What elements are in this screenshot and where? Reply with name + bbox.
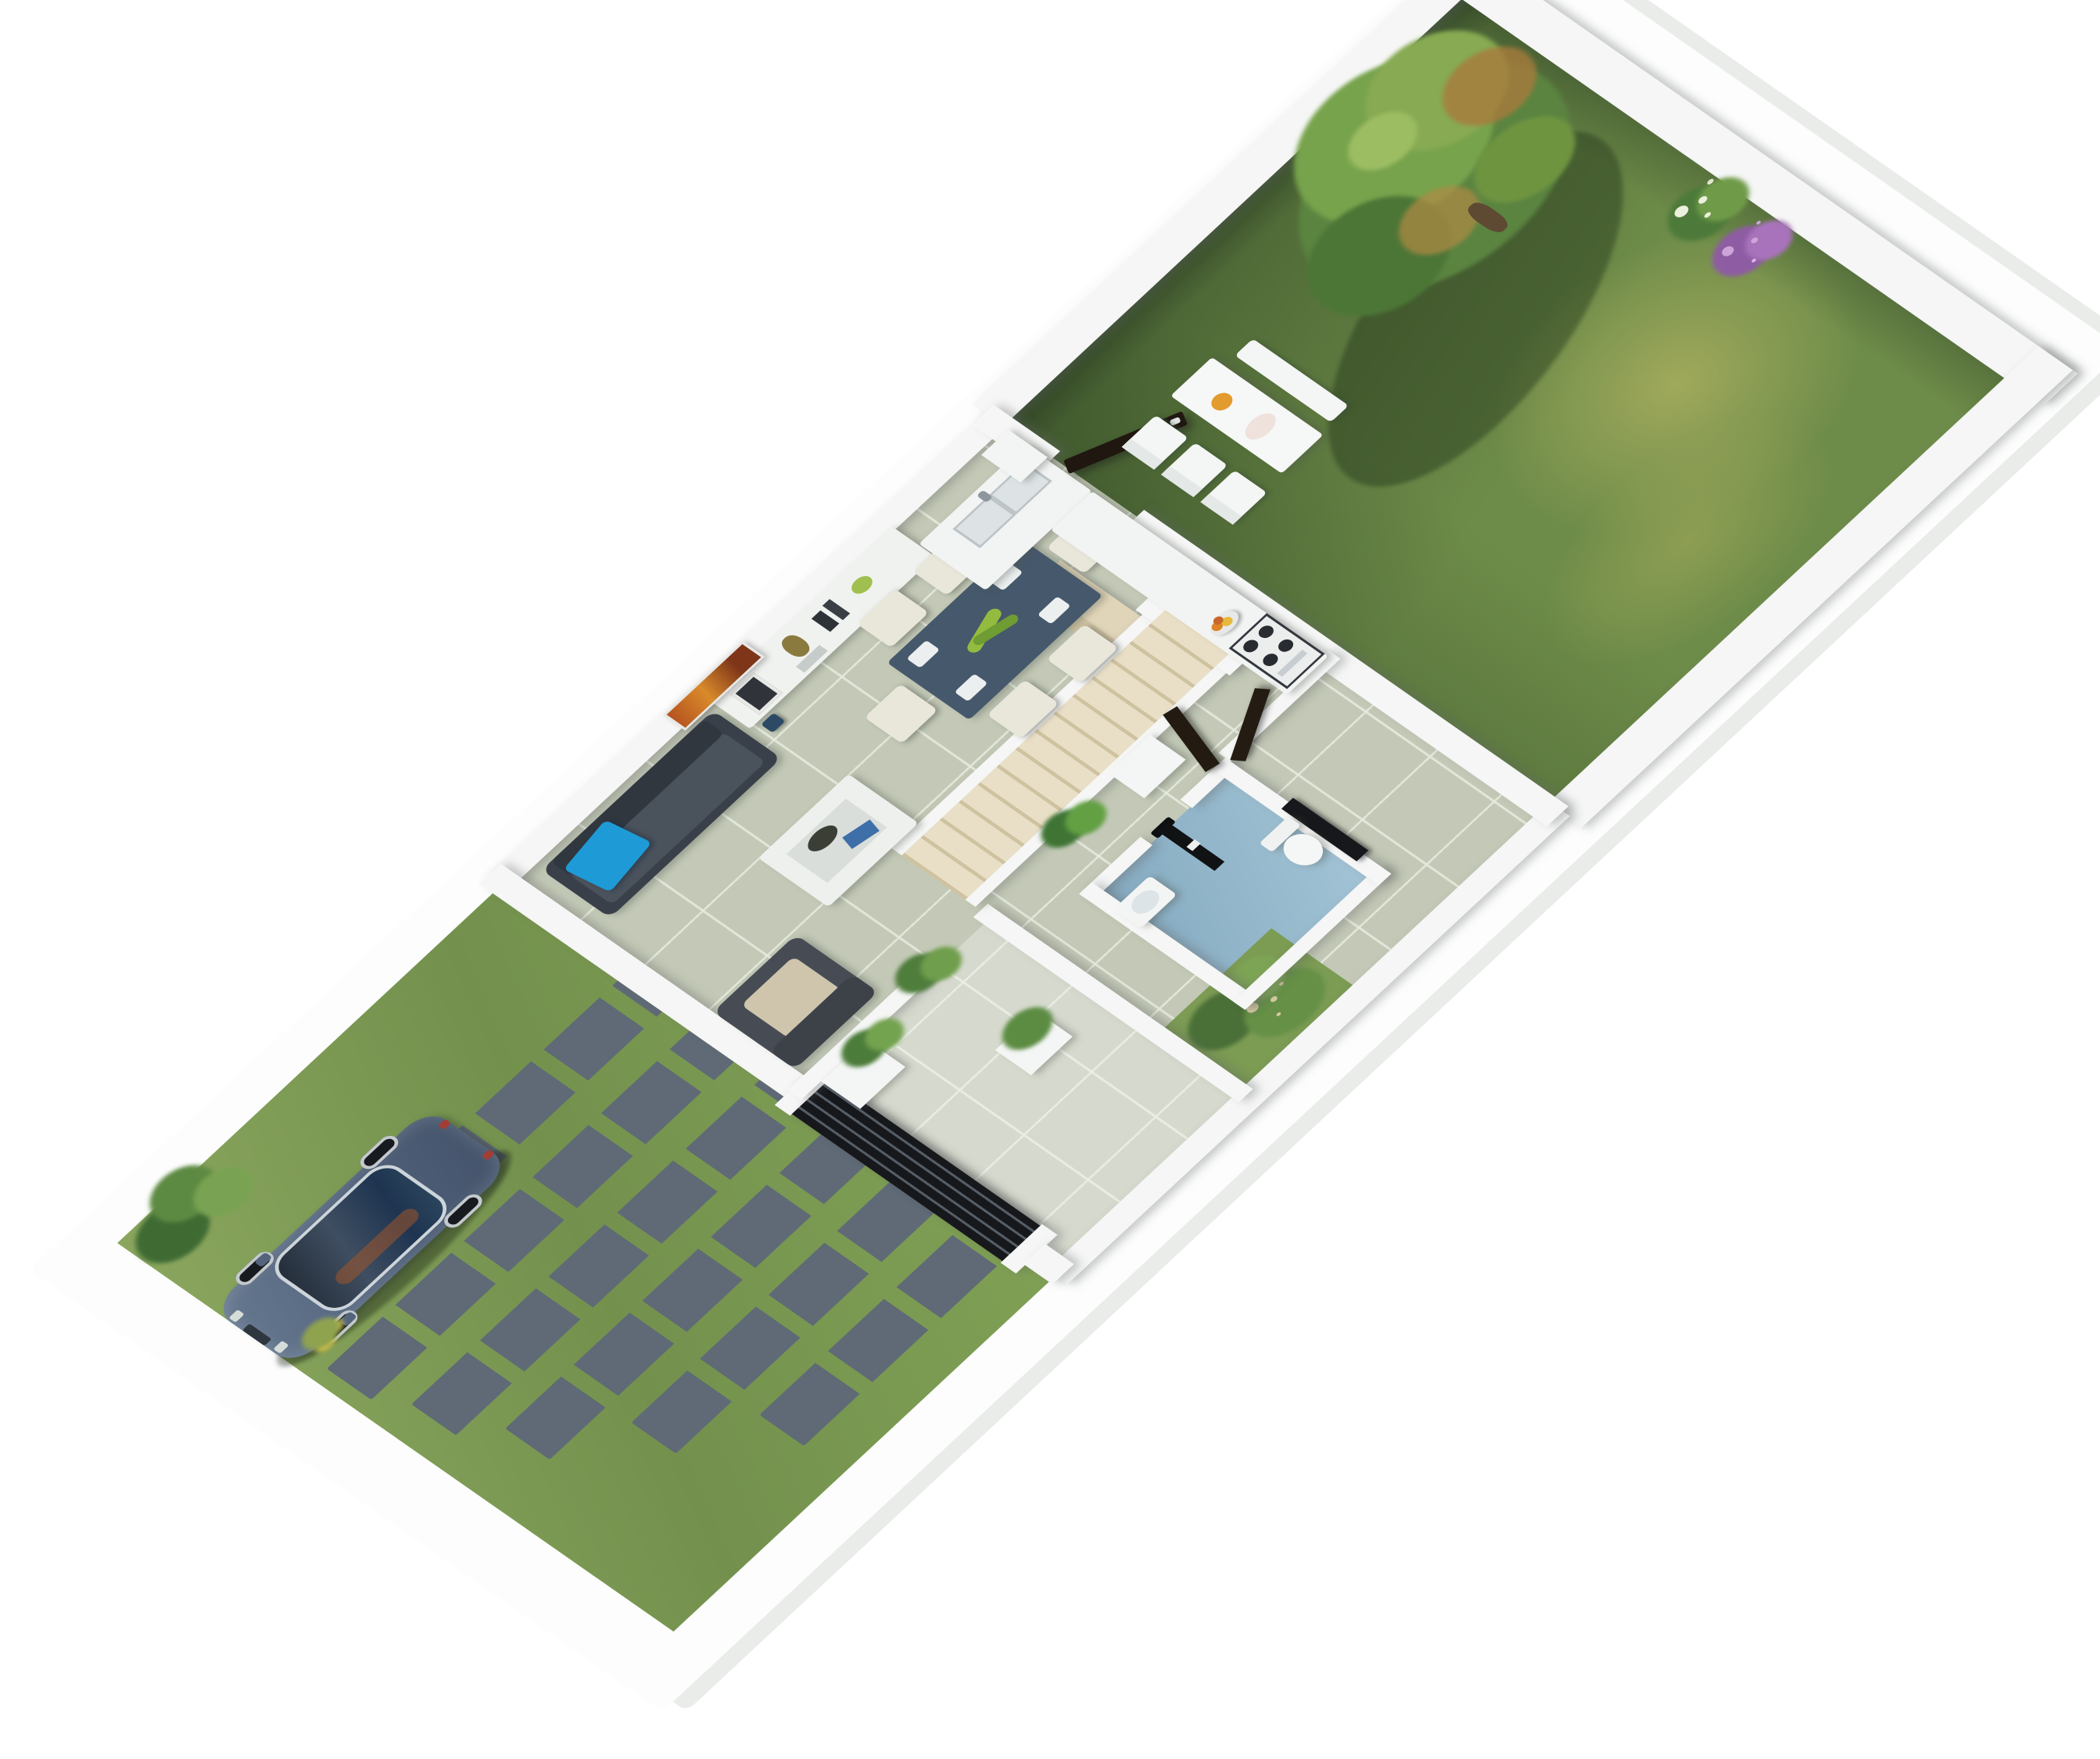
place-setting — [955, 674, 988, 702]
pitcher — [1207, 389, 1237, 414]
plate — [1239, 409, 1281, 444]
render-canvas — [0, 0, 2100, 1759]
place-setting — [1037, 596, 1071, 625]
decor-green-bowl — [848, 573, 876, 597]
place-setting — [906, 640, 940, 668]
centerpiece-leaves — [951, 597, 1030, 663]
floor-plan — [117, 0, 2027, 1632]
